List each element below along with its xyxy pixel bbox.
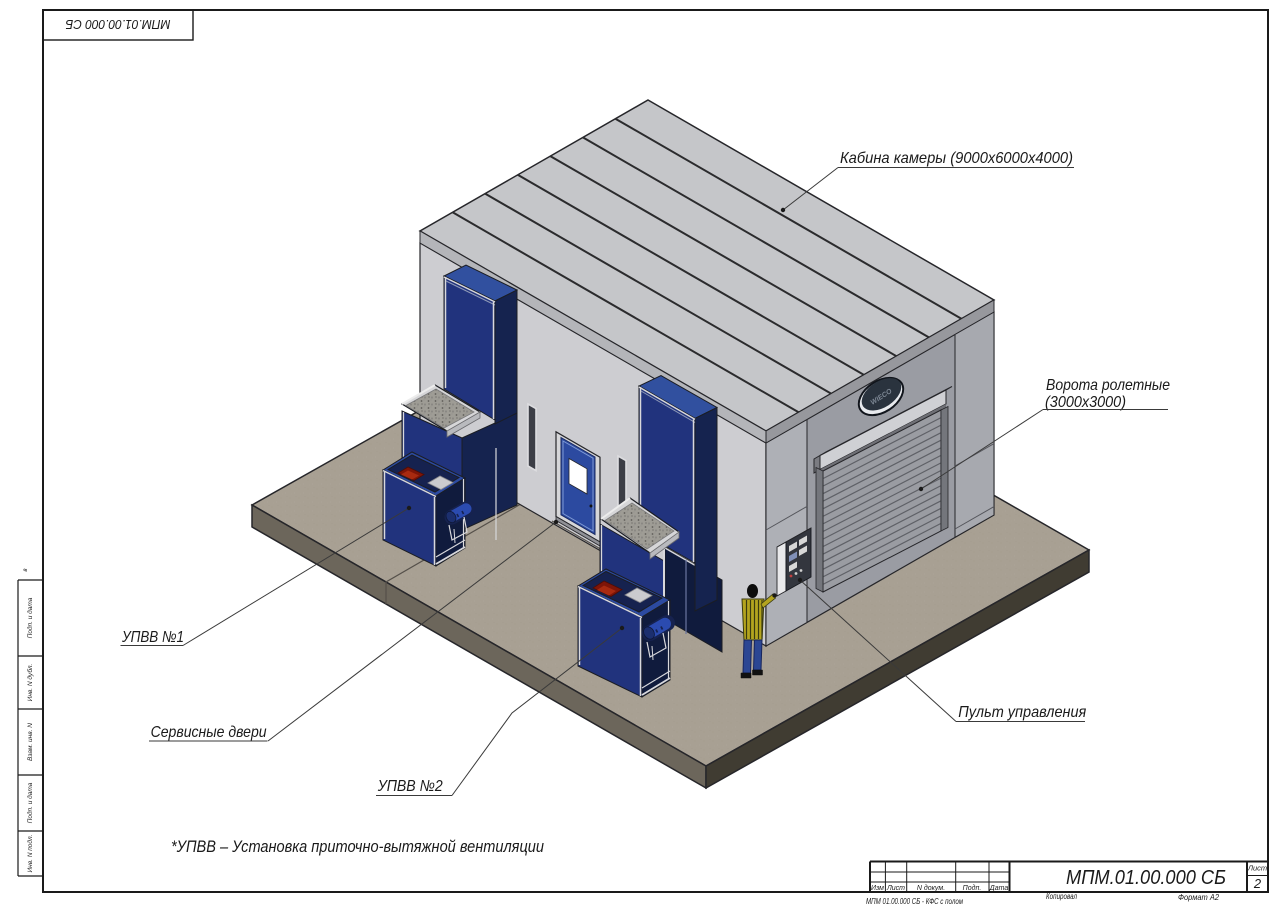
svg-text:Копировал: Копировал xyxy=(1046,892,1077,901)
svg-text:Взам. инв. N: Взам. инв. N xyxy=(27,723,34,761)
svg-text:Сервисные двери: Сервисные двери xyxy=(151,724,267,741)
svg-text:Ворота ролетные: Ворота ролетные xyxy=(1046,377,1170,394)
svg-text:Лист: Лист xyxy=(886,885,905,892)
svg-text:2: 2 xyxy=(1253,876,1262,891)
svg-text:Подп.: Подп. xyxy=(963,884,982,892)
svg-text:Кабина камеры (9000х6000х400: Кабина камеры (9000х6000х4000) xyxy=(840,150,1073,167)
svg-text:УПВВ №2: УПВВ №2 xyxy=(377,778,443,795)
svg-text:Дата: Дата xyxy=(989,885,1009,892)
svg-text:*УПВВ – Установка приточно-: *УПВВ – Установка приточно-вытяжной вент… xyxy=(171,837,544,856)
svg-text:Формат А2: Формат А2 xyxy=(1178,893,1220,902)
svg-text:в: в xyxy=(23,568,29,571)
svg-text:МПМ 01.00.000 СБ - КФС с полом: МПМ 01.00.000 СБ - КФС с полом xyxy=(866,897,963,905)
svg-text:Инв. N подл.: Инв. N подл. xyxy=(26,834,34,872)
svg-text:(3000х3000): (3000х3000) xyxy=(1045,394,1126,411)
svg-text:Инв. N дубл.: Инв. N дубл. xyxy=(26,663,34,701)
svg-text:МПМ.01.00.000 СБ: МПМ.01.00.000 СБ xyxy=(65,17,170,32)
svg-text:МПМ.01.00.000 СБ: МПМ.01.00.000 СБ xyxy=(1066,867,1226,889)
svg-text:Изм: Изм xyxy=(871,885,884,892)
svg-text:Лист: Лист xyxy=(1247,864,1267,873)
svg-text:Пульт управления: Пульт управления xyxy=(958,704,1086,721)
svg-text:Подп. и дата: Подп. и дата xyxy=(26,597,34,638)
svg-text:УПВВ №1: УПВВ №1 xyxy=(121,629,184,646)
svg-text:Подп. и дата: Подп. и дата xyxy=(26,782,34,823)
svg-text:N докум.: N докум. xyxy=(917,884,945,892)
